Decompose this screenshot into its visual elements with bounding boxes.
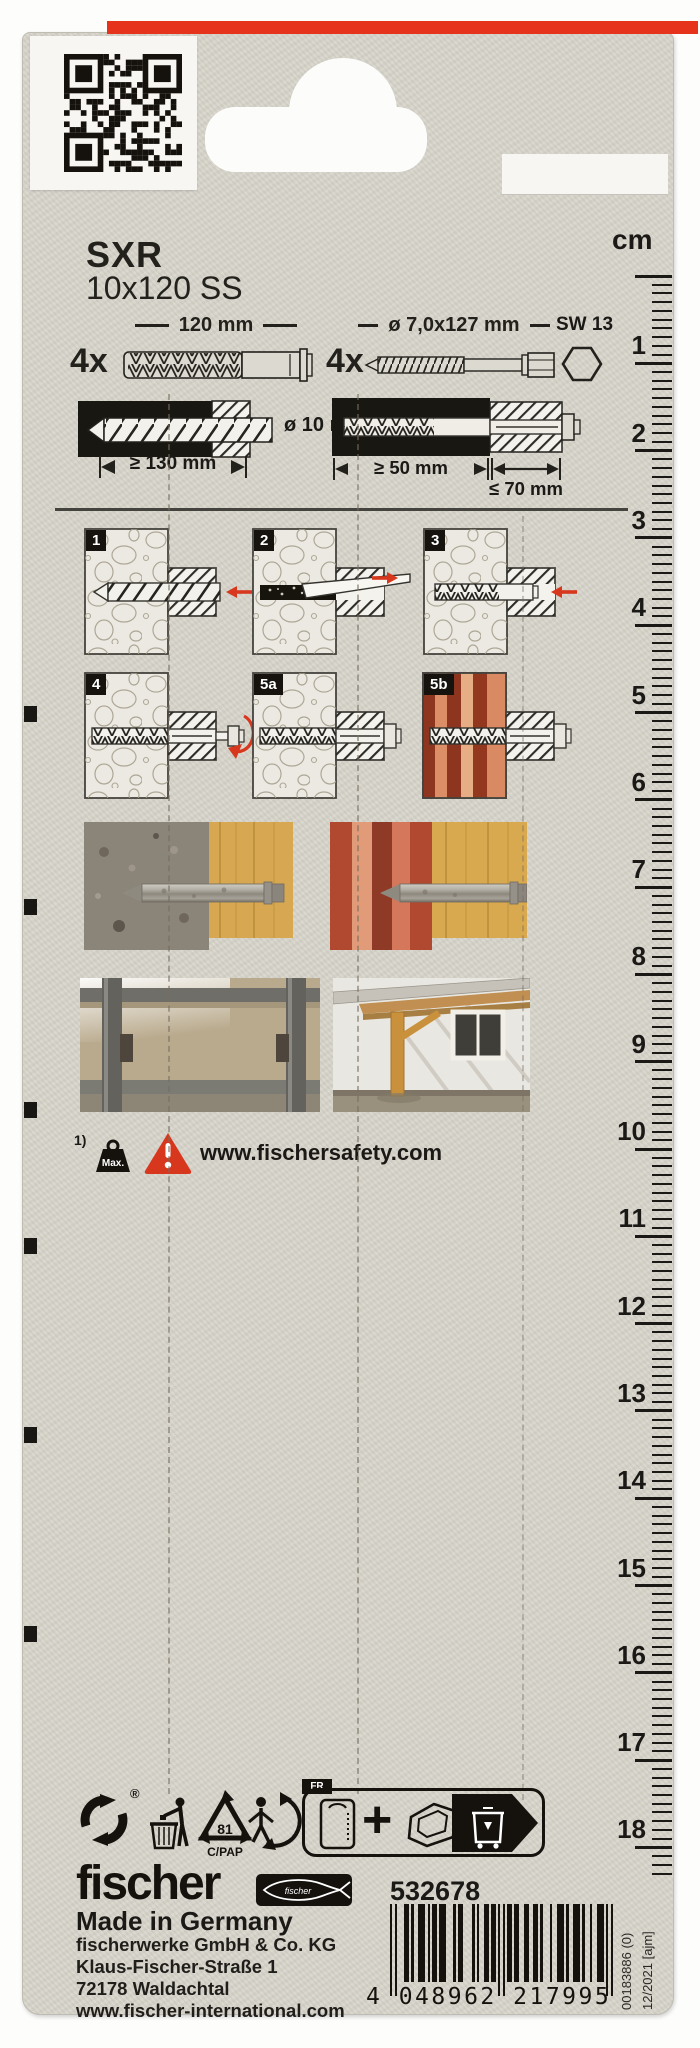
qr-module — [148, 161, 154, 167]
qr-module — [120, 116, 126, 122]
ruler-minor-tick — [652, 1454, 672, 1456]
qr-module — [131, 121, 137, 127]
qr-module — [131, 155, 137, 161]
ruler-minor-tick — [652, 1183, 672, 1185]
ruler-minor-tick — [652, 519, 672, 521]
barcode-bar — [503, 1904, 505, 1996]
qr-module — [126, 65, 132, 71]
qr-module — [171, 116, 177, 122]
qr-module — [171, 161, 177, 167]
qr-module — [137, 65, 143, 71]
qr-module — [131, 60, 137, 66]
qr-module — [137, 99, 143, 105]
barcode-bar — [540, 1904, 542, 1982]
ruler-minor-tick — [652, 327, 672, 329]
fixture-thickness-label: ≤ 70 mm — [486, 478, 566, 500]
application-photo-wooden-canopy — [333, 978, 530, 1112]
ruler-minor-tick — [652, 1419, 672, 1421]
registered-mark: ® — [130, 1786, 140, 1801]
drill-depth-label: ≥ 130 mm — [98, 453, 248, 475]
qr-module — [148, 150, 154, 156]
ruler-minor-tick — [652, 1768, 672, 1770]
disposal-bin-icon — [452, 1794, 538, 1852]
ruler-minor-tick — [652, 1392, 672, 1394]
ruler-minor-tick — [652, 1820, 672, 1822]
barcode-bar — [590, 1904, 592, 1982]
ruler-minor-tick — [652, 956, 672, 958]
ruler-minor-tick — [652, 1873, 672, 1875]
company-website: www.fischer-international.com — [76, 2000, 345, 2022]
qr-module — [131, 88, 137, 94]
ruler-minor-tick — [652, 1715, 672, 1717]
article-number: 532678 — [390, 1876, 480, 1907]
ruler-minor-tick — [652, 1270, 672, 1272]
qr-module — [109, 133, 115, 139]
hex-nut-icon — [560, 344, 604, 384]
barcode-bar — [390, 1904, 392, 1996]
step-badge: 4 — [86, 674, 106, 695]
ruler-minor-tick — [652, 1532, 672, 1534]
ruler-minor-tick — [652, 546, 672, 548]
ruler-minor-tick — [652, 633, 672, 635]
qr-module — [137, 133, 143, 139]
plug-length-label: 120 mm — [179, 314, 254, 337]
ruler-minor-tick — [652, 1122, 672, 1124]
qr-module — [126, 60, 132, 66]
ruler-minor-tick — [652, 834, 672, 836]
ruler-major-tick — [635, 1322, 672, 1325]
ruler-minor-tick — [652, 476, 672, 478]
ruler-minor-tick — [652, 1349, 672, 1351]
ruler-minor-tick — [652, 1331, 672, 1333]
ruler-minor-tick — [652, 1017, 672, 1019]
qr-module — [103, 60, 109, 66]
ruler-minor-tick — [652, 869, 672, 871]
ruler-minor-tick — [652, 1218, 672, 1220]
footnote-marker: 1) — [74, 1132, 86, 1148]
qr-module — [109, 121, 115, 127]
ruler-unit-label: cm — [612, 224, 652, 256]
blister-card-icon — [318, 1797, 360, 1851]
registration-mark — [24, 706, 37, 722]
qr-module — [64, 93, 70, 99]
ruler-major-tick — [635, 798, 672, 801]
product-size: 10x120 SS — [86, 270, 243, 307]
anchor-depth-label: ≥ 50 mm — [332, 457, 490, 479]
ruler-major-tick — [635, 1497, 672, 1500]
ruler-minor-tick — [652, 808, 672, 810]
qr-module — [176, 121, 182, 127]
barcode-bar — [395, 1904, 397, 1996]
ruler-minor-tick — [652, 816, 672, 818]
max-load-icon: Max. — [90, 1138, 136, 1174]
ruler-minor-tick — [652, 432, 672, 434]
qr-module — [120, 71, 126, 77]
city-address: 72178 Waldachtal — [76, 1978, 230, 2000]
screw-dimension-label: ø 7,0x127 mm — [388, 314, 519, 337]
ruler-number: 11 — [588, 1203, 646, 1234]
fish-emblem-icon: fischer — [256, 1874, 352, 1906]
qr-module — [171, 105, 177, 111]
qr-module — [137, 150, 143, 156]
qr-module — [64, 110, 70, 116]
qr-module — [75, 105, 81, 111]
ruler-minor-tick — [652, 1777, 672, 1779]
qr-module — [131, 93, 137, 99]
ruler-number: 17 — [588, 1727, 646, 1758]
ruler-minor-tick — [652, 380, 672, 382]
ruler-number: 10 — [588, 1116, 646, 1147]
ruler-minor-tick — [652, 1864, 672, 1866]
ruler-minor-tick — [652, 301, 672, 303]
ruler-minor-tick — [652, 1750, 672, 1752]
ruler-minor-tick — [652, 310, 672, 312]
barcode-bar — [435, 1904, 437, 1982]
ruler-minor-tick — [652, 511, 672, 513]
ruler-major-tick — [635, 711, 672, 714]
qr-module — [115, 82, 121, 88]
registration-mark — [24, 1626, 37, 1642]
ruler-minor-tick — [652, 1131, 672, 1133]
qr-module — [131, 99, 137, 105]
ruler-minor-tick — [652, 1689, 672, 1691]
qr-module — [148, 105, 154, 111]
ruler-major-tick — [635, 1060, 672, 1063]
ruler-minor-tick — [652, 607, 672, 609]
qr-module — [109, 116, 115, 122]
ruler-number: 16 — [588, 1640, 646, 1671]
ruler-minor-tick — [652, 764, 672, 766]
barcode-bar — [611, 1904, 613, 1996]
qr-module — [109, 93, 115, 99]
ruler-minor-tick — [652, 1043, 672, 1045]
qr-module — [137, 121, 143, 127]
qr-module — [143, 138, 149, 144]
qr-module — [126, 71, 132, 77]
ruler-minor-tick — [652, 1576, 672, 1578]
qr-module — [131, 166, 137, 172]
ruler-minor-tick — [652, 1200, 672, 1202]
step-badge: 2 — [254, 530, 274, 551]
ruler-minor-tick — [652, 1069, 672, 1071]
ruler-minor-tick — [652, 694, 672, 696]
qr-module — [131, 127, 137, 133]
qr-module — [154, 65, 171, 82]
ruler-minor-tick — [652, 406, 672, 408]
company-name: fischerwerke GmbH & Co. KG — [76, 1934, 336, 1956]
ruler-minor-tick — [652, 938, 672, 940]
qr-module — [120, 93, 126, 99]
ruler-minor-tick — [652, 1096, 672, 1098]
ruler-minor-tick — [652, 1401, 672, 1403]
ruler-minor-tick — [652, 458, 672, 460]
fish-emblem-text: fischer — [285, 1886, 313, 1896]
ruler-minor-tick — [652, 1602, 672, 1604]
qr-module — [92, 116, 98, 122]
ruler-minor-tick — [652, 1480, 672, 1482]
qr-module — [137, 144, 143, 150]
qr-module — [137, 155, 143, 161]
barcode-bar — [406, 1904, 408, 1982]
qr-module — [115, 121, 121, 127]
ruler-minor-tick — [652, 598, 672, 600]
ruler-major-tick — [635, 1759, 672, 1762]
qr-module — [120, 88, 126, 94]
ruler-minor-tick — [652, 1314, 672, 1316]
ruler-major-tick — [635, 1235, 672, 1238]
ruler-minor-tick — [652, 1296, 672, 1298]
ruler-major-tick — [635, 1671, 672, 1674]
hang-tab-notch — [502, 154, 668, 195]
ruler-minor-tick — [652, 1165, 672, 1167]
ruler-minor-tick — [652, 1838, 672, 1840]
ruler-minor-tick — [652, 991, 672, 993]
ruler-minor-tick — [652, 345, 672, 347]
ruler-minor-tick — [652, 1157, 672, 1159]
barcode-digits: 4 048962 217995 — [366, 1984, 611, 2010]
barcode-bar — [472, 1904, 474, 1982]
qr-module — [75, 127, 81, 133]
ruler-minor-tick — [652, 738, 672, 740]
barcode-bar — [601, 1904, 603, 1982]
wrench-size-label: SW 13 — [556, 314, 613, 336]
barcode-bar — [428, 1904, 430, 1982]
step-illustration — [252, 528, 422, 655]
ruler-minor-tick — [652, 1541, 672, 1543]
qr-module — [109, 60, 115, 66]
ruler-minor-tick — [652, 1227, 672, 1229]
ruler-minor-tick — [652, 336, 672, 338]
ruler-minor-tick — [652, 1855, 672, 1857]
qr-module — [115, 105, 121, 111]
ruler-major-tick — [635, 1148, 672, 1151]
ruler-minor-tick — [652, 563, 672, 565]
ruler-minor-tick — [652, 1829, 672, 1831]
barcode-bar — [582, 1904, 584, 1982]
ruler-minor-tick — [652, 1803, 672, 1805]
barcode-bar — [486, 1904, 488, 1982]
qr-module — [81, 121, 87, 127]
qr-module — [120, 138, 126, 144]
screw-quantity: 4x — [326, 342, 364, 381]
ruler-minor-tick — [652, 912, 672, 914]
qr-module — [120, 110, 126, 116]
ruler-minor-tick — [652, 528, 672, 530]
ruler-minor-tick — [652, 1000, 672, 1002]
qr-module — [171, 121, 177, 127]
qr-module — [176, 144, 182, 150]
barcode-bar — [423, 1904, 425, 1982]
ruler-minor-tick — [652, 1209, 672, 1211]
qr-module — [126, 161, 132, 167]
ruler-minor-tick — [652, 677, 672, 679]
qr-module — [70, 105, 76, 111]
dimension-dash — [530, 324, 550, 327]
barcode-bar — [561, 1904, 563, 1982]
ruler-minor-tick — [652, 467, 672, 469]
qr-module — [154, 155, 160, 161]
barcode-bar — [578, 1904, 580, 1982]
qr-module — [109, 161, 115, 167]
max-load-label: Max. — [102, 1158, 124, 1169]
ruler-major-tick — [635, 624, 672, 627]
qr-module — [109, 71, 115, 77]
ruler-minor-tick — [652, 720, 672, 722]
ruler-number: 4 — [588, 592, 646, 623]
ruler-minor-tick — [652, 1113, 672, 1115]
qr-module — [171, 150, 177, 156]
qr-module — [126, 150, 132, 156]
ruler-minor-tick — [652, 1462, 672, 1464]
crease-line — [168, 394, 170, 1794]
ruler-minor-tick — [652, 415, 672, 417]
qr-module — [154, 105, 160, 111]
ruler-minor-tick — [652, 423, 672, 425]
ruler-minor-tick — [652, 1078, 672, 1080]
qr-module — [109, 88, 115, 94]
qr-module — [165, 127, 171, 133]
ruler-number: 14 — [588, 1465, 646, 1496]
qr-module — [64, 121, 70, 127]
ruler-minor-tick — [652, 1366, 672, 1368]
ruler-minor-tick — [652, 371, 672, 373]
barcode-bar — [517, 1904, 519, 1982]
ruler-minor-tick — [652, 441, 672, 443]
barcode-bar — [526, 1904, 528, 1982]
ruler-minor-tick — [652, 1261, 672, 1263]
qr-module — [103, 127, 109, 133]
step-badge: 5b — [424, 674, 454, 695]
print-info: 00183886 (0) 12/2021 [ajm] — [618, 1906, 656, 2010]
qr-module — [176, 161, 182, 167]
euro-hang-hole — [205, 52, 427, 174]
ruler-minor-tick — [652, 755, 672, 757]
qr-module — [154, 110, 160, 116]
qr-module — [120, 161, 126, 167]
ruler-minor-tick — [652, 781, 672, 783]
ruler-number: 6 — [588, 767, 646, 798]
qr-module — [165, 166, 171, 172]
print-code: 00183886 (0) — [618, 1906, 636, 2010]
barcode-bar — [566, 1904, 568, 1982]
qr-module — [115, 65, 121, 71]
ruler-minor-tick — [652, 485, 672, 487]
ruler-minor-tick — [652, 1663, 672, 1665]
qr-module — [171, 99, 177, 105]
qr-module — [154, 99, 160, 105]
barcode-bar — [411, 1904, 413, 1982]
crease-line — [357, 394, 359, 1794]
dimension-dash — [263, 324, 297, 327]
qr-module — [126, 82, 132, 88]
ruler-minor-tick — [652, 982, 672, 984]
qr-module — [109, 105, 115, 111]
tidy-man-icon — [140, 1794, 190, 1854]
print-date: 12/2021 [ajm] — [639, 1906, 657, 2010]
barcode-bar — [493, 1904, 495, 1982]
ruler-minor-tick — [652, 1436, 672, 1438]
qr-code — [64, 54, 182, 172]
crease-line — [522, 516, 524, 1800]
ruler-minor-tick — [652, 493, 672, 495]
qr-module — [148, 138, 154, 144]
qr-module — [92, 99, 98, 105]
triman-icon — [244, 1792, 306, 1850]
ruler-minor-tick — [652, 1035, 672, 1037]
ruler-minor-tick — [652, 1742, 672, 1744]
qr-module — [98, 121, 104, 127]
ruler-minor-tick — [652, 1471, 672, 1473]
ruler-minor-tick — [652, 319, 672, 321]
ruler-minor-tick — [652, 1104, 672, 1106]
qr-module — [154, 127, 160, 133]
qr-module — [103, 110, 109, 116]
ruler-minor-tick — [652, 581, 672, 583]
barcode-bar — [477, 1904, 479, 1982]
ruler-minor-tick — [652, 1174, 672, 1176]
ruler-minor-tick — [652, 1593, 672, 1595]
screw-dimension-row: ø 7,0x127 mm — [358, 314, 550, 337]
ruler-minor-tick — [652, 1515, 672, 1517]
plug-illustration — [122, 348, 314, 382]
ruler-minor-tick — [652, 1506, 672, 1508]
barcode-bar — [510, 1904, 512, 1982]
qr-module — [143, 105, 149, 111]
ruler-minor-tick — [652, 1550, 672, 1552]
ruler-minor-tick — [652, 1253, 672, 1255]
barcode-bar — [536, 1904, 538, 1982]
anchor-diagram — [326, 394, 582, 464]
red-top-strip — [107, 21, 698, 34]
ruler-minor-tick — [652, 877, 672, 879]
qr-module — [98, 99, 104, 105]
ruler-minor-tick — [652, 1637, 672, 1639]
ruler-minor-tick — [652, 842, 672, 844]
ruler-minor-tick — [652, 1008, 672, 1010]
screw-illustration — [364, 346, 564, 384]
qr-module — [81, 127, 87, 133]
qr-module — [154, 161, 160, 167]
ruler-minor-tick — [652, 1244, 672, 1246]
ruler-minor-tick — [652, 1628, 672, 1630]
ruler-minor-tick — [652, 572, 672, 574]
qr-module — [115, 166, 121, 172]
qr-module — [120, 144, 126, 150]
ruler-minor-tick — [652, 397, 672, 399]
ruler-minor-tick — [652, 1646, 672, 1648]
ruler-major-tick — [635, 362, 672, 365]
qr-module — [120, 150, 126, 156]
qr-module — [143, 150, 149, 156]
ruler-minor-tick — [652, 1733, 672, 1735]
ruler-minor-tick — [652, 1375, 672, 1377]
ruler-minor-tick — [652, 642, 672, 644]
ruler-number: 8 — [588, 941, 646, 972]
qr-module — [137, 138, 143, 144]
ruler-minor-tick — [652, 1384, 672, 1386]
ruler-minor-tick — [652, 685, 672, 687]
qr-module — [115, 54, 121, 60]
ruler-minor-tick — [652, 895, 672, 897]
ruler-minor-tick — [652, 1358, 672, 1360]
ruler-number: 12 — [588, 1291, 646, 1322]
qr-module — [103, 150, 109, 156]
qr-module — [131, 138, 137, 144]
ruler-minor-tick — [652, 1794, 672, 1796]
barcode-bar — [550, 1904, 552, 1982]
ruler-minor-tick — [652, 284, 672, 286]
qr-module — [165, 110, 171, 116]
